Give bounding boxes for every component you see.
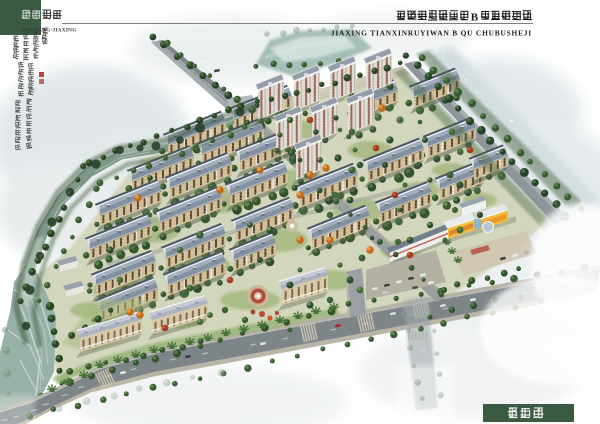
svg-text:JIAXING TIANXINRUYIWAN B QU CH: JIAXING TIANXINRUYIWAN B QU CHUBUSHEJI <box>331 29 532 38</box>
svg-text:B: B <box>471 12 479 24</box>
svg-text:ZHEJIANG·JIAXING: ZHEJIANG·JIAXING <box>21 28 77 34</box>
